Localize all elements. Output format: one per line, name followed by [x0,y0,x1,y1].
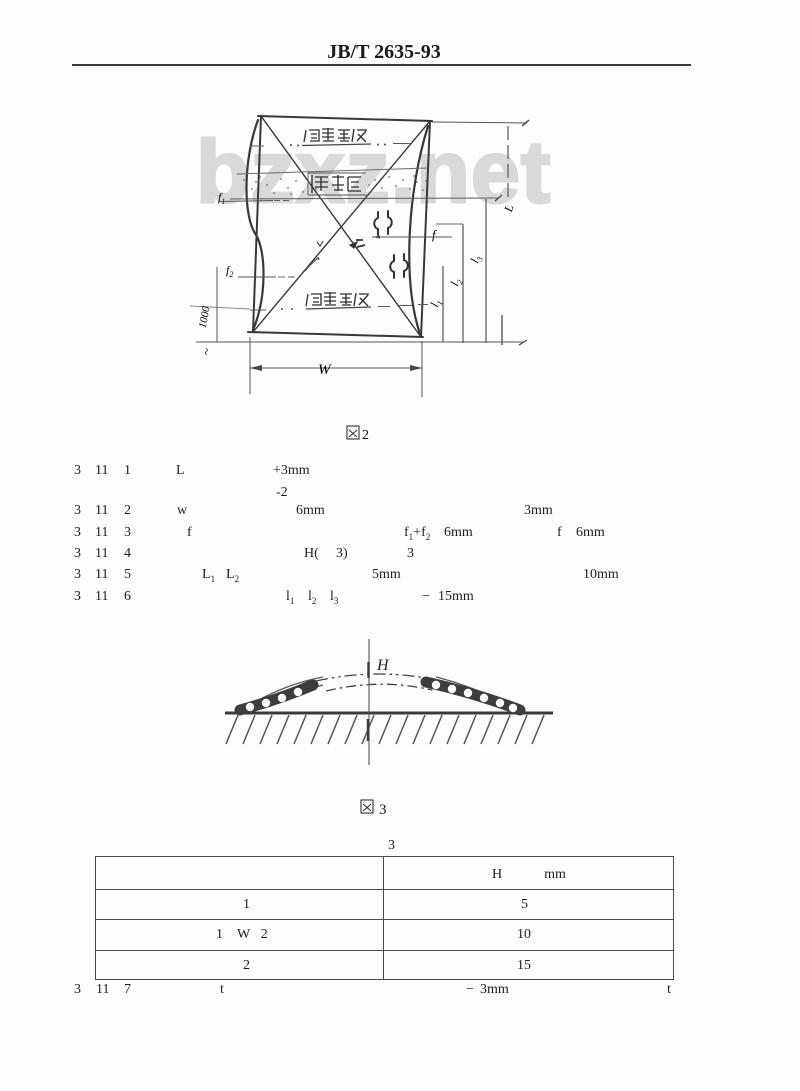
svg-text:l3: l3 [467,253,485,265]
svg-text:~: ~ [198,347,214,357]
svg-text:f: f [432,227,438,242]
svg-text:f2: f2 [226,263,233,279]
svg-text:l1: l1 [427,297,445,309]
svg-text:1000: 1000 [197,305,213,329]
svg-text:bzxz.net: bzxz.net [196,122,551,221]
svg-text:2: 2 [362,428,369,443]
svg-text:W: W [318,362,332,378]
svg-text:l2: l2 [447,276,465,288]
svg-text:3: 3 [379,802,387,818]
svg-text:H: H [376,657,390,674]
